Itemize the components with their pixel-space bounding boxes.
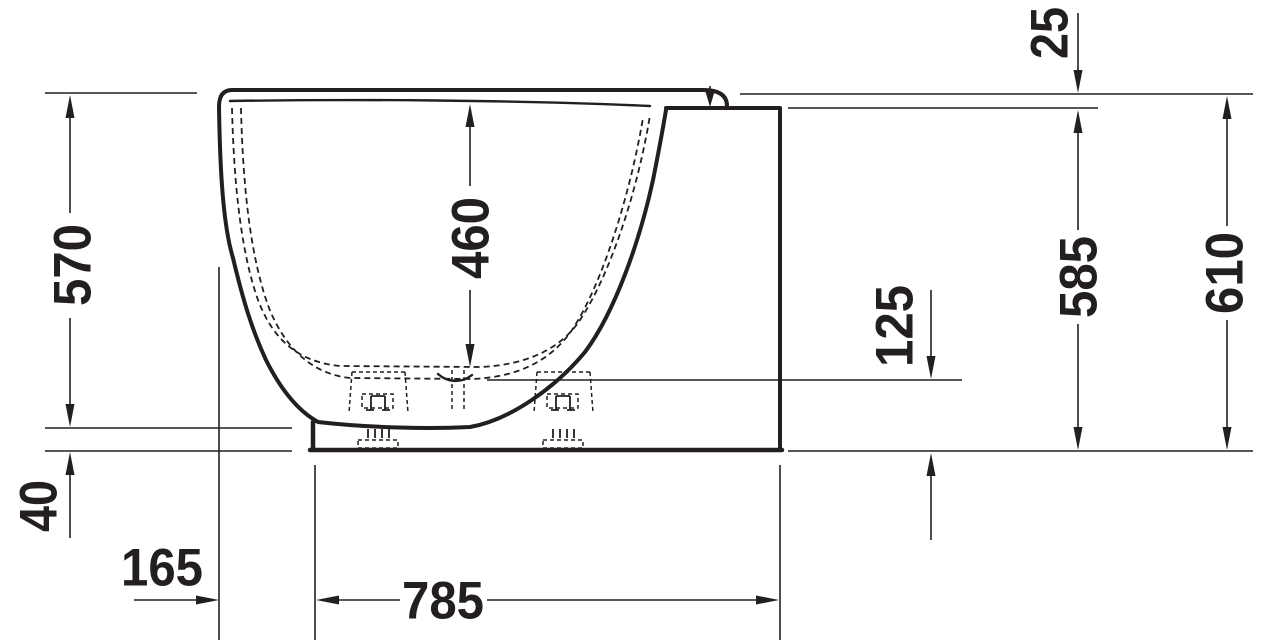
dim-label-125: 125 (866, 285, 925, 367)
dim-label-25: 25 (1021, 7, 1080, 59)
tub-rim-edge (232, 90, 727, 106)
dim-label-570: 570 (44, 224, 103, 306)
foot-base-pad (543, 440, 583, 448)
dim-label-585: 585 (1050, 236, 1109, 318)
back-panel (666, 108, 780, 450)
drain-pipe-hidden (452, 370, 464, 412)
dimension-610: 610 (1196, 96, 1255, 450)
dimension-165: 165 (121, 539, 219, 605)
dimension-570: 570 (44, 95, 103, 427)
dim-label-785: 785 (402, 572, 484, 631)
foot-assembly-right (534, 372, 593, 448)
dimension-785: 785 (316, 572, 779, 631)
foot-stud-hatching (553, 429, 574, 438)
dim-label-460: 460 (442, 197, 501, 279)
dimension-460: 460 (442, 104, 501, 367)
dim-label-610: 610 (1196, 232, 1255, 314)
extension-lines (45, 93, 1253, 640)
dimension-125: 125 (866, 285, 936, 540)
dim-label-40: 40 (10, 480, 69, 532)
foot-stud-hatching (368, 429, 389, 438)
foot-base-pad (358, 440, 398, 448)
dimension-585: 585 (1050, 110, 1109, 450)
foot-assembly-left (349, 372, 408, 448)
bathtub-technical-drawing: 570 40 165 785 460 125 25 (0, 0, 1263, 642)
inner-rim-edge (230, 100, 650, 106)
dim-label-165: 165 (121, 539, 203, 598)
dimension-25: 25 (1021, 7, 1083, 93)
dimension-40: 40 (10, 452, 75, 538)
